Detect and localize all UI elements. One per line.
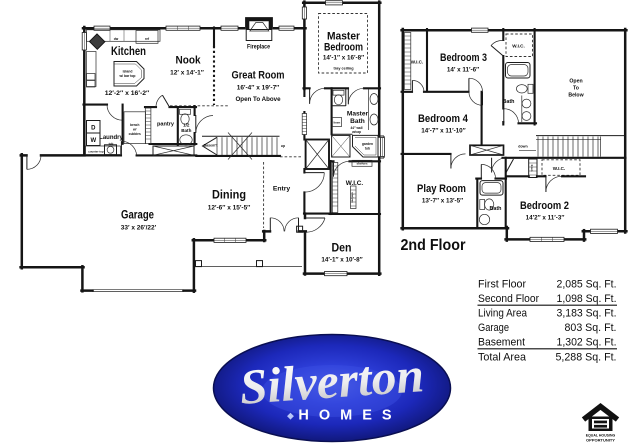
svg-text:33′ x 26′/22′: 33′ x 26′/22′ — [121, 225, 157, 232]
svg-text:Bath: Bath — [490, 206, 502, 212]
svg-text:w/: w/ — [132, 128, 136, 132]
svg-text:pantry: pantry — [157, 122, 175, 128]
svg-text:w/cap: w/cap — [351, 130, 361, 134]
svg-text:OPPORTUNITY: OPPORTUNITY — [586, 438, 615, 443]
svg-text:1,098 Sq. Ft.: 1,098 Sq. Ft. — [557, 293, 617, 305]
svg-text:Bedroom: Bedroom — [324, 42, 363, 54]
svg-text:Open: Open — [569, 79, 582, 85]
svg-text:Second Floor: Second Floor — [478, 293, 539, 305]
svg-text:w/ bar top: w/ bar top — [118, 74, 135, 78]
svg-text:tray ceiling: tray ceiling — [333, 67, 354, 71]
svg-text:linen: linen — [530, 165, 534, 172]
svg-text:W.I.C.: W.I.C. — [346, 180, 364, 187]
svg-text:Den: Den — [332, 243, 352, 255]
svg-text:14′-1″ x 16′-8″: 14′-1″ x 16′-8″ — [323, 55, 364, 62]
svg-text:14′-1″ x 10′-8″: 14′-1″ x 10′-8″ — [321, 257, 362, 264]
svg-text:Kitchen: Kitchen — [111, 46, 146, 58]
svg-text:12′ x 14′-1″: 12′ x 14′-1″ — [170, 70, 204, 77]
svg-text:12′-2″ x 16′-2″: 12′-2″ x 16′-2″ — [105, 90, 150, 97]
svg-text:Fireplace: Fireplace — [247, 44, 270, 51]
svg-text:Laundry: Laundry — [99, 135, 123, 141]
svg-text:garden: garden — [362, 142, 373, 146]
svg-text:Basement: Basement — [478, 337, 526, 349]
svg-text:shelves: shelves — [350, 192, 354, 203]
svg-text:3,183 Sq. Ft.: 3,183 Sq. Ft. — [557, 308, 617, 320]
svg-text:Bath: Bath — [181, 128, 191, 133]
svg-text:down: down — [518, 145, 527, 149]
svg-text:Bedroom 2: Bedroom 2 — [520, 200, 569, 212]
svg-text:Bedroom 4: Bedroom 4 — [418, 113, 469, 125]
svg-text:Play Room: Play Room — [417, 183, 466, 195]
svg-text:Garage: Garage — [478, 322, 509, 334]
svg-text:Great Room: Great Room — [232, 70, 285, 82]
svg-text:W.I.C.: W.I.C. — [411, 60, 424, 65]
svg-text:14′2″ x 11′-3″: 14′2″ x 11′-3″ — [526, 215, 565, 222]
svg-text:HOMES: HOMES — [298, 408, 401, 424]
svg-text:Below: Below — [568, 93, 584, 99]
svg-text:linen: linen — [334, 120, 341, 124]
svg-text:Garage: Garage — [121, 210, 154, 222]
svg-text:1,302 Sq. Ft.: 1,302 Sq. Ft. — [557, 337, 617, 349]
svg-text:First Floor: First Floor — [478, 279, 526, 291]
svg-text:◆: ◆ — [287, 411, 294, 421]
svg-text:2nd Floor: 2nd Floor — [401, 237, 466, 254]
svg-text:5,288 Sq. Ft.: 5,288 Sq. Ft. — [556, 352, 617, 364]
svg-text:shelves: shelves — [356, 162, 367, 166]
svg-text:Living Area: Living Area — [478, 308, 528, 320]
svg-text:W.I.C.: W.I.C. — [512, 44, 525, 49]
svg-text:Basem′t: Basem′t — [204, 143, 219, 147]
svg-text:Bedroom 3: Bedroom 3 — [440, 52, 487, 64]
svg-text:up: up — [281, 144, 285, 148]
svg-text:Master: Master — [347, 111, 369, 118]
svg-text:D: D — [91, 126, 96, 132]
svg-text:Open To Above: Open To Above — [235, 96, 281, 103]
svg-text:Bath: Bath — [350, 118, 365, 125]
svg-text:W.I.C.: W.I.C. — [553, 166, 566, 171]
svg-text:1/2: 1/2 — [183, 123, 190, 128]
svg-text:14′ x 11′-6″: 14′ x 11′-6″ — [447, 67, 479, 74]
svg-text:Dining: Dining — [212, 190, 246, 202]
svg-text:2,085 Sq. Ft.: 2,085 Sq. Ft. — [557, 279, 617, 291]
svg-text:Entry: Entry — [273, 186, 291, 193]
svg-text:tub: tub — [365, 147, 370, 151]
svg-text:12′-6″ x 15′-5″: 12′-6″ x 15′-5″ — [208, 205, 251, 212]
svg-text:Total Area: Total Area — [478, 352, 527, 364]
svg-text:dw: dw — [114, 37, 119, 41]
svg-text:cubbies: cubbies — [129, 132, 141, 136]
svg-text:island: island — [123, 70, 133, 74]
svg-text:bench: bench — [130, 123, 139, 127]
svg-text:counter top: counter top — [88, 150, 104, 154]
svg-text:16′-4″ x 19′-7″: 16′-4″ x 19′-7″ — [237, 85, 280, 92]
svg-text:803 Sq. Ft.: 803 Sq. Ft. — [565, 322, 617, 334]
svg-text:13′-7″ x 13′-5″: 13′-7″ x 13′-5″ — [422, 198, 463, 205]
svg-text:W: W — [90, 138, 96, 144]
svg-text:tub: tub — [109, 142, 114, 146]
svg-text:To: To — [573, 86, 579, 92]
svg-text:14′-7″ x 11′-10″: 14′-7″ x 11′-10″ — [421, 128, 465, 135]
svg-text:Bath: Bath — [503, 99, 515, 105]
svg-text:Nook: Nook — [176, 55, 202, 67]
